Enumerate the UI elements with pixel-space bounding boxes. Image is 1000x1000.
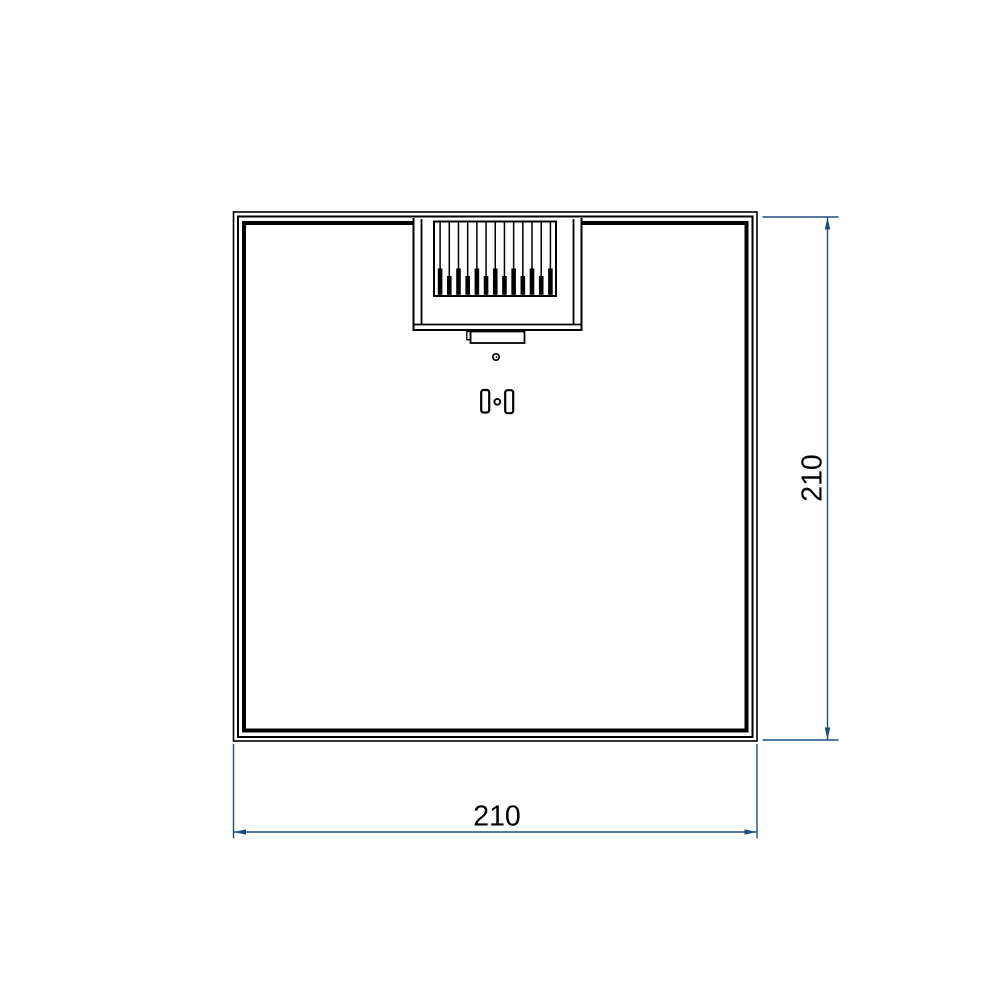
pin-contact	[521, 276, 526, 295]
arrowhead-right-icon	[745, 829, 757, 835]
vent-slot-right	[505, 390, 513, 413]
arrowhead-up-icon	[825, 218, 831, 230]
pilot-hole	[493, 354, 499, 360]
pin-contact	[502, 276, 507, 295]
pin-contact	[438, 269, 443, 295]
connector-latch-tab	[471, 332, 525, 344]
connector-latch-notch	[467, 332, 471, 340]
drawing-canvas: 210 210	[0, 0, 1000, 1000]
pin-contact	[465, 276, 470, 295]
pin-contact	[493, 269, 498, 295]
pin-contact	[548, 269, 553, 295]
height-dimension: 210	[763, 217, 839, 740]
pin-contact	[484, 276, 489, 295]
pin-contact	[447, 276, 452, 295]
arrowhead-down-icon	[825, 728, 831, 740]
vent-slot-left	[481, 390, 489, 413]
connector-assembly	[414, 218, 582, 413]
pin-contact	[530, 269, 535, 295]
pin-contact	[511, 269, 516, 295]
width-dimension: 210	[234, 744, 758, 839]
pilot-hole-center	[496, 356, 498, 358]
width-dim-label: 210	[473, 801, 521, 833]
pin-contact	[539, 276, 544, 295]
pin-contact	[456, 269, 461, 295]
arrowhead-left-icon	[234, 829, 246, 835]
panel-outline-inner	[244, 223, 747, 731]
pin-contact	[475, 269, 480, 295]
height-dim-label: 210	[797, 454, 829, 502]
center-hole	[494, 399, 500, 405]
cad-drawing: 210 210	[0, 0, 1000, 1000]
slot-group	[481, 390, 513, 413]
connector-pins	[438, 223, 553, 295]
